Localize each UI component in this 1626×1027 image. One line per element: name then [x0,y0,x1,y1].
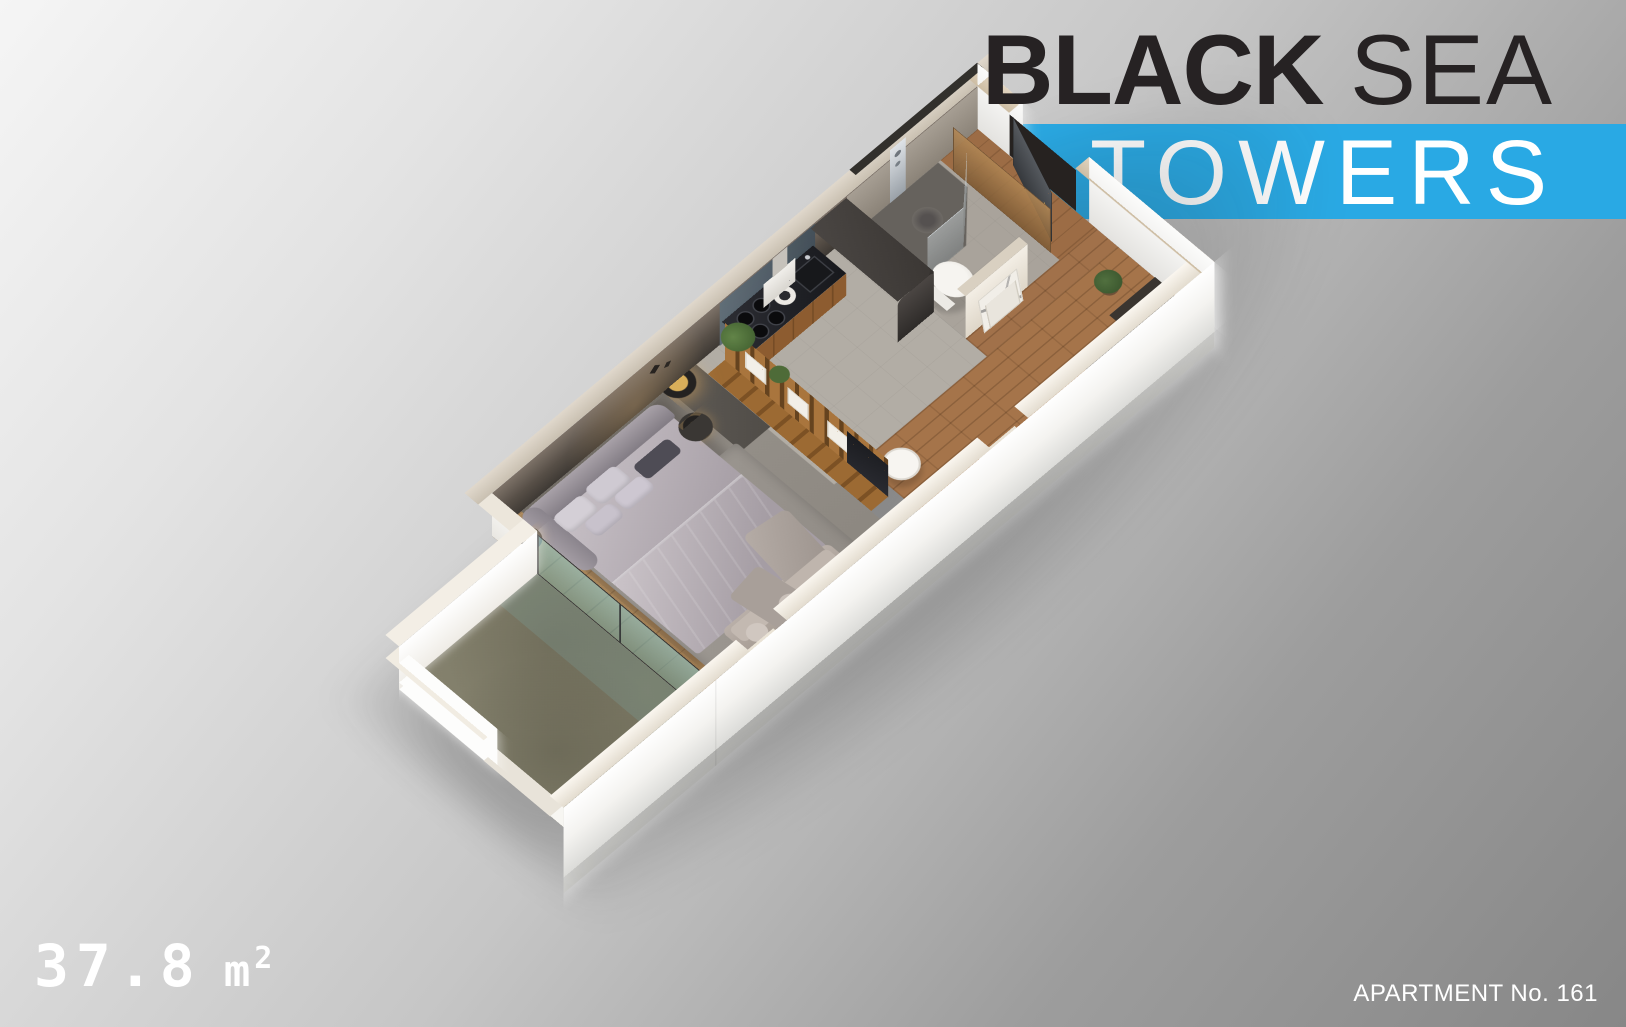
glass-door-mullion [619,604,621,643]
shower-control-icon [895,148,901,158]
brand-title-light: SEA [1350,14,1554,125]
apartment-number: APARTMENT No. 161 [1353,980,1598,1008]
area-label: 37.8m2 [34,932,274,1000]
shower-control-icon [895,159,900,168]
area-value: 37.8 [34,932,202,1000]
area-unit-exponent: 2 [254,941,274,976]
brand-title: BLACK SEA [982,20,1554,119]
area-unit: m [224,946,253,997]
wall-decor-icon [650,365,661,374]
floorplan-stage [0,0,1626,1027]
brand-title-bold: BLACK [982,14,1323,125]
